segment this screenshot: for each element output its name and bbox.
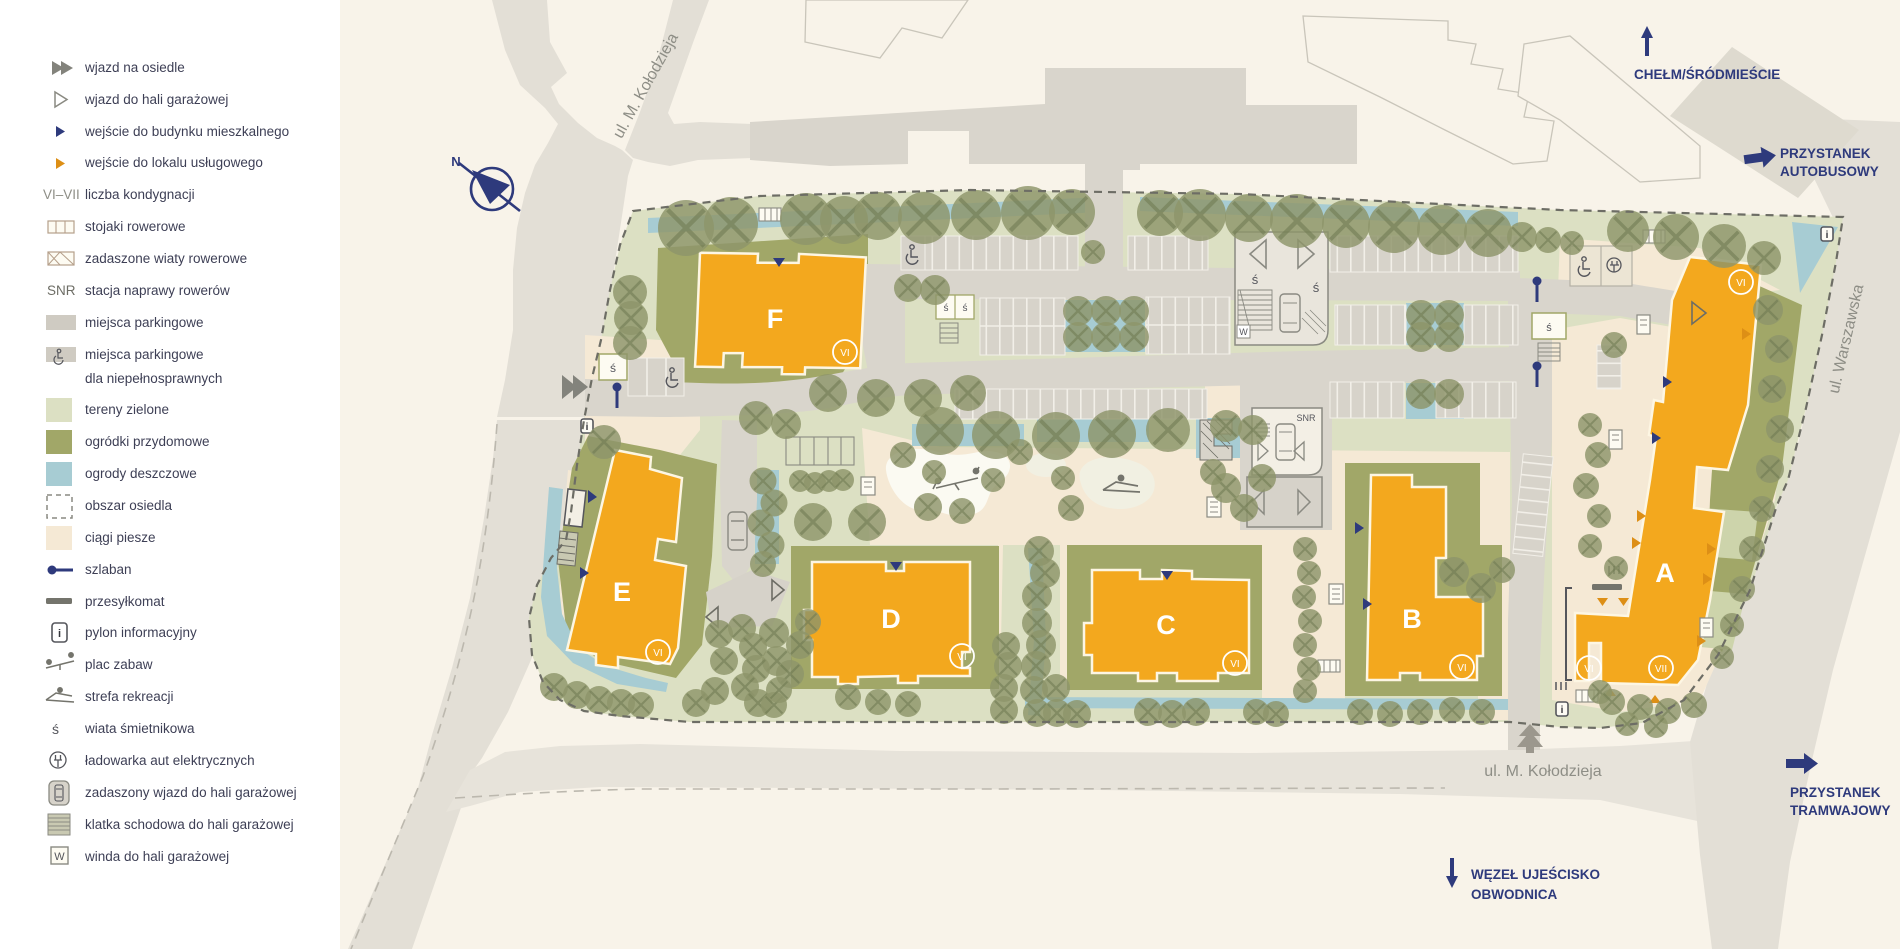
svg-text:wejście do lokalu usługowego: wejście do lokalu usługowego bbox=[84, 155, 263, 170]
svg-text:klatka schodowa do hali garażo: klatka schodowa do hali garażowej bbox=[85, 817, 294, 832]
svg-text:wjazd do hali garażowej: wjazd do hali garażowej bbox=[84, 92, 228, 107]
svg-text:PRZYSTANEK: PRZYSTANEK bbox=[1780, 146, 1871, 161]
svg-text:wjazd na osiedle: wjazd na osiedle bbox=[84, 60, 185, 75]
svg-text:TRAMWAJOWY: TRAMWAJOWY bbox=[1790, 803, 1891, 818]
svg-text:OBWODNICA: OBWODNICA bbox=[1471, 887, 1557, 902]
svg-text:W: W bbox=[54, 851, 65, 863]
svg-text:ś: ś bbox=[52, 721, 59, 737]
svg-text:N: N bbox=[451, 154, 460, 169]
svg-text:stacja naprawy rowerów: stacja naprawy rowerów bbox=[85, 283, 230, 298]
svg-text:ładowarka aut elektrycznych: ładowarka aut elektrycznych bbox=[85, 753, 255, 768]
svg-text:VI: VI bbox=[1736, 278, 1745, 289]
svg-text:zadaszone wiaty rowerowe: zadaszone wiaty rowerowe bbox=[85, 251, 247, 266]
svg-text:ś: ś bbox=[963, 303, 968, 314]
svg-text:CHEŁM/ŚRÓDMIEŚCIE: CHEŁM/ŚRÓDMIEŚCIE bbox=[1634, 67, 1780, 82]
svg-text:obszar osiedla: obszar osiedla bbox=[85, 498, 173, 513]
svg-text:pylon informacyjny: pylon informacyjny bbox=[85, 625, 197, 640]
svg-text:szlaban: szlaban bbox=[85, 562, 132, 577]
svg-text:C: C bbox=[1156, 610, 1176, 640]
svg-text:ś: ś bbox=[610, 361, 616, 375]
svg-text:SNR: SNR bbox=[47, 283, 76, 298]
svg-text:liczba kondygnacji: liczba kondygnacji bbox=[85, 187, 195, 202]
svg-text:miejsca parkingowe: miejsca parkingowe bbox=[85, 347, 204, 362]
svg-text:stojaki rowerowe: stojaki rowerowe bbox=[85, 219, 186, 234]
svg-text:strefa rekreacji: strefa rekreacji bbox=[85, 689, 174, 704]
svg-text:i: i bbox=[58, 628, 61, 640]
svg-text:ogródki przydomowe: ogródki przydomowe bbox=[85, 434, 210, 449]
svg-text:zadaszony wjazd do hali garażo: zadaszony wjazd do hali garażowej bbox=[85, 785, 297, 800]
svg-text:VI: VI bbox=[1457, 663, 1466, 674]
svg-text:D: D bbox=[881, 604, 901, 634]
svg-text:miejsca parkingowe: miejsca parkingowe bbox=[85, 315, 204, 330]
svg-text:AUTOBUSOWY: AUTOBUSOWY bbox=[1780, 164, 1879, 179]
svg-text:VI–VII: VI–VII bbox=[43, 187, 80, 202]
svg-text:plac zabaw: plac zabaw bbox=[85, 657, 153, 672]
svg-text:E: E bbox=[613, 577, 631, 607]
svg-text:VI: VI bbox=[653, 648, 662, 659]
svg-text:ś: ś bbox=[1313, 280, 1320, 295]
svg-text:VI: VI bbox=[1230, 659, 1239, 670]
svg-text:WĘZEŁ UJEŚCISKO: WĘZEŁ UJEŚCISKO bbox=[1471, 867, 1600, 882]
svg-text:A: A bbox=[1655, 558, 1675, 588]
svg-text:przesyłkomat: przesyłkomat bbox=[85, 594, 165, 609]
svg-text:W: W bbox=[1239, 327, 1248, 337]
svg-text:ś: ś bbox=[1546, 322, 1552, 334]
svg-text:wejście do budynku mieszkalneg: wejście do budynku mieszkalnego bbox=[84, 124, 289, 139]
svg-text:wiata śmietnikowa: wiata śmietnikowa bbox=[84, 721, 195, 736]
svg-text:ciągi piesze: ciągi piesze bbox=[85, 530, 156, 545]
svg-text:SNR: SNR bbox=[1296, 413, 1316, 423]
svg-text:ogrody deszczowe: ogrody deszczowe bbox=[85, 466, 197, 481]
svg-text:VI: VI bbox=[1584, 664, 1593, 675]
svg-text:tereny zielone: tereny zielone bbox=[85, 402, 169, 417]
svg-text:dla niepełnosprawnych: dla niepełnosprawnych bbox=[85, 371, 222, 386]
svg-text:PRZYSTANEK: PRZYSTANEK bbox=[1790, 785, 1881, 800]
svg-text:B: B bbox=[1402, 604, 1422, 634]
svg-text:ul. M. Kołodzieja: ul. M. Kołodzieja bbox=[1484, 763, 1601, 780]
svg-text:VI: VI bbox=[957, 652, 966, 663]
svg-text:ś: ś bbox=[1252, 272, 1259, 287]
svg-text:VII: VII bbox=[1655, 664, 1667, 675]
svg-text:VI: VI bbox=[840, 348, 849, 359]
svg-text:ś: ś bbox=[944, 303, 949, 314]
svg-text:F: F bbox=[767, 304, 784, 334]
svg-text:winda do hali garażowej: winda do hali garażowej bbox=[84, 849, 229, 864]
